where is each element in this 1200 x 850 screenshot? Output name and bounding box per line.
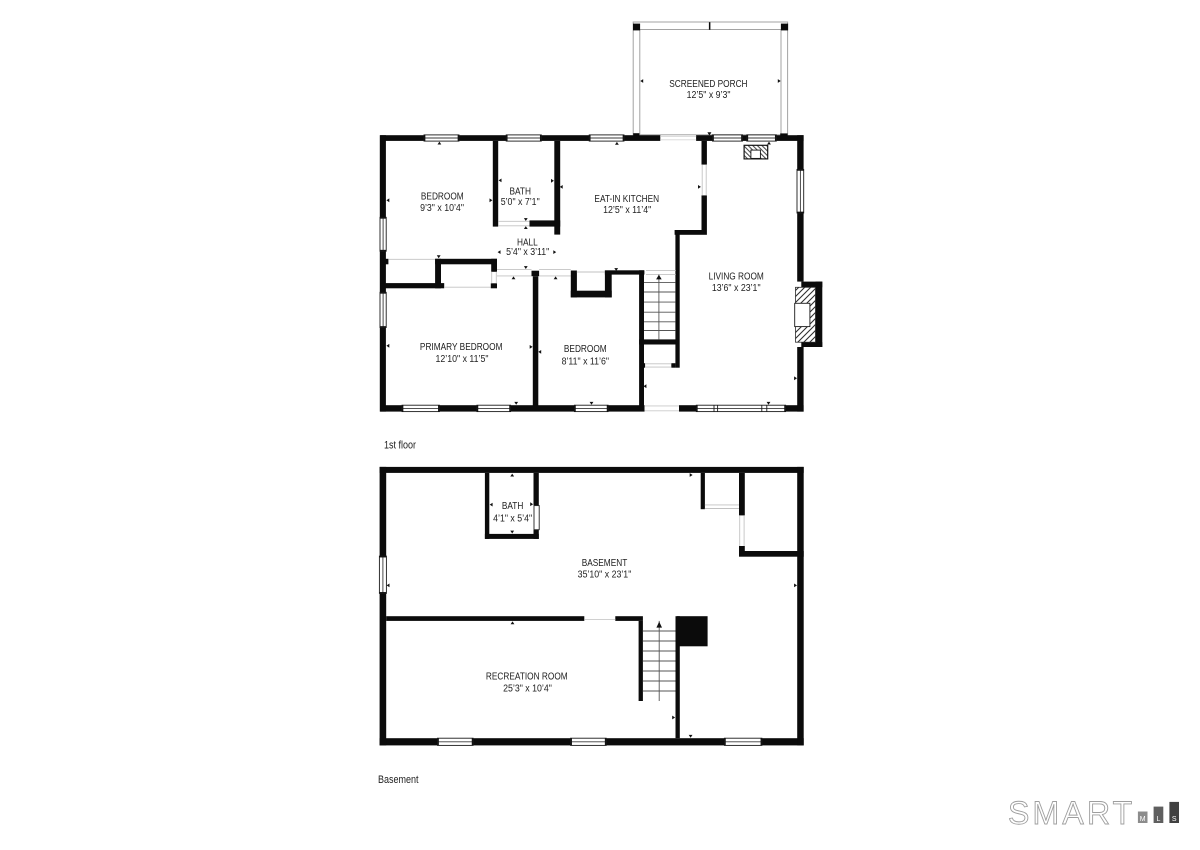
svg-text:BEDROOM: BEDROOM [564, 343, 607, 354]
svg-text:12’5" x 9’3": 12’5" x 9’3" [687, 88, 731, 100]
svg-text:35’10" x 23’1": 35’10" x 23’1" [578, 568, 632, 580]
svg-text:25’3" x 10’4": 25’3" x 10’4" [503, 682, 552, 694]
svg-text:L: L [1156, 816, 1160, 823]
svg-text:9’3" x 10’4": 9’3" x 10’4" [420, 201, 464, 213]
svg-text:1st floor: 1st floor [384, 440, 417, 452]
svg-text:S: S [1172, 816, 1177, 823]
svg-text:12’10" x 11’5": 12’10" x 11’5" [436, 352, 489, 364]
svg-text:PRIMARY BEDROOM: PRIMARY BEDROOM [420, 341, 503, 352]
svg-text:4’1" x 5’4": 4’1" x 5’4" [493, 512, 532, 524]
svg-text:LIVING ROOM: LIVING ROOM [709, 271, 764, 282]
svg-text:SMART: SMART [1008, 795, 1135, 831]
svg-text:BASEMENT: BASEMENT [582, 557, 628, 568]
svg-text:5’0" x 7’1": 5’0" x 7’1" [501, 195, 540, 207]
svg-text:5’4" x 3’11": 5’4" x 3’11" [506, 245, 549, 257]
svg-text:RECREATION ROOM: RECREATION ROOM [486, 671, 568, 682]
svg-text:Basement: Basement [378, 774, 419, 786]
svg-text:12’5" x 11’4": 12’5" x 11’4" [603, 203, 651, 215]
svg-text:BEDROOM: BEDROOM [421, 191, 464, 202]
svg-text:BATH: BATH [502, 500, 523, 511]
svg-text:M: M [1140, 816, 1146, 823]
svg-text:8’11" x 11’6": 8’11" x 11’6" [562, 355, 609, 367]
svg-text:13’6" x 23’1": 13’6" x 23’1" [712, 281, 761, 293]
